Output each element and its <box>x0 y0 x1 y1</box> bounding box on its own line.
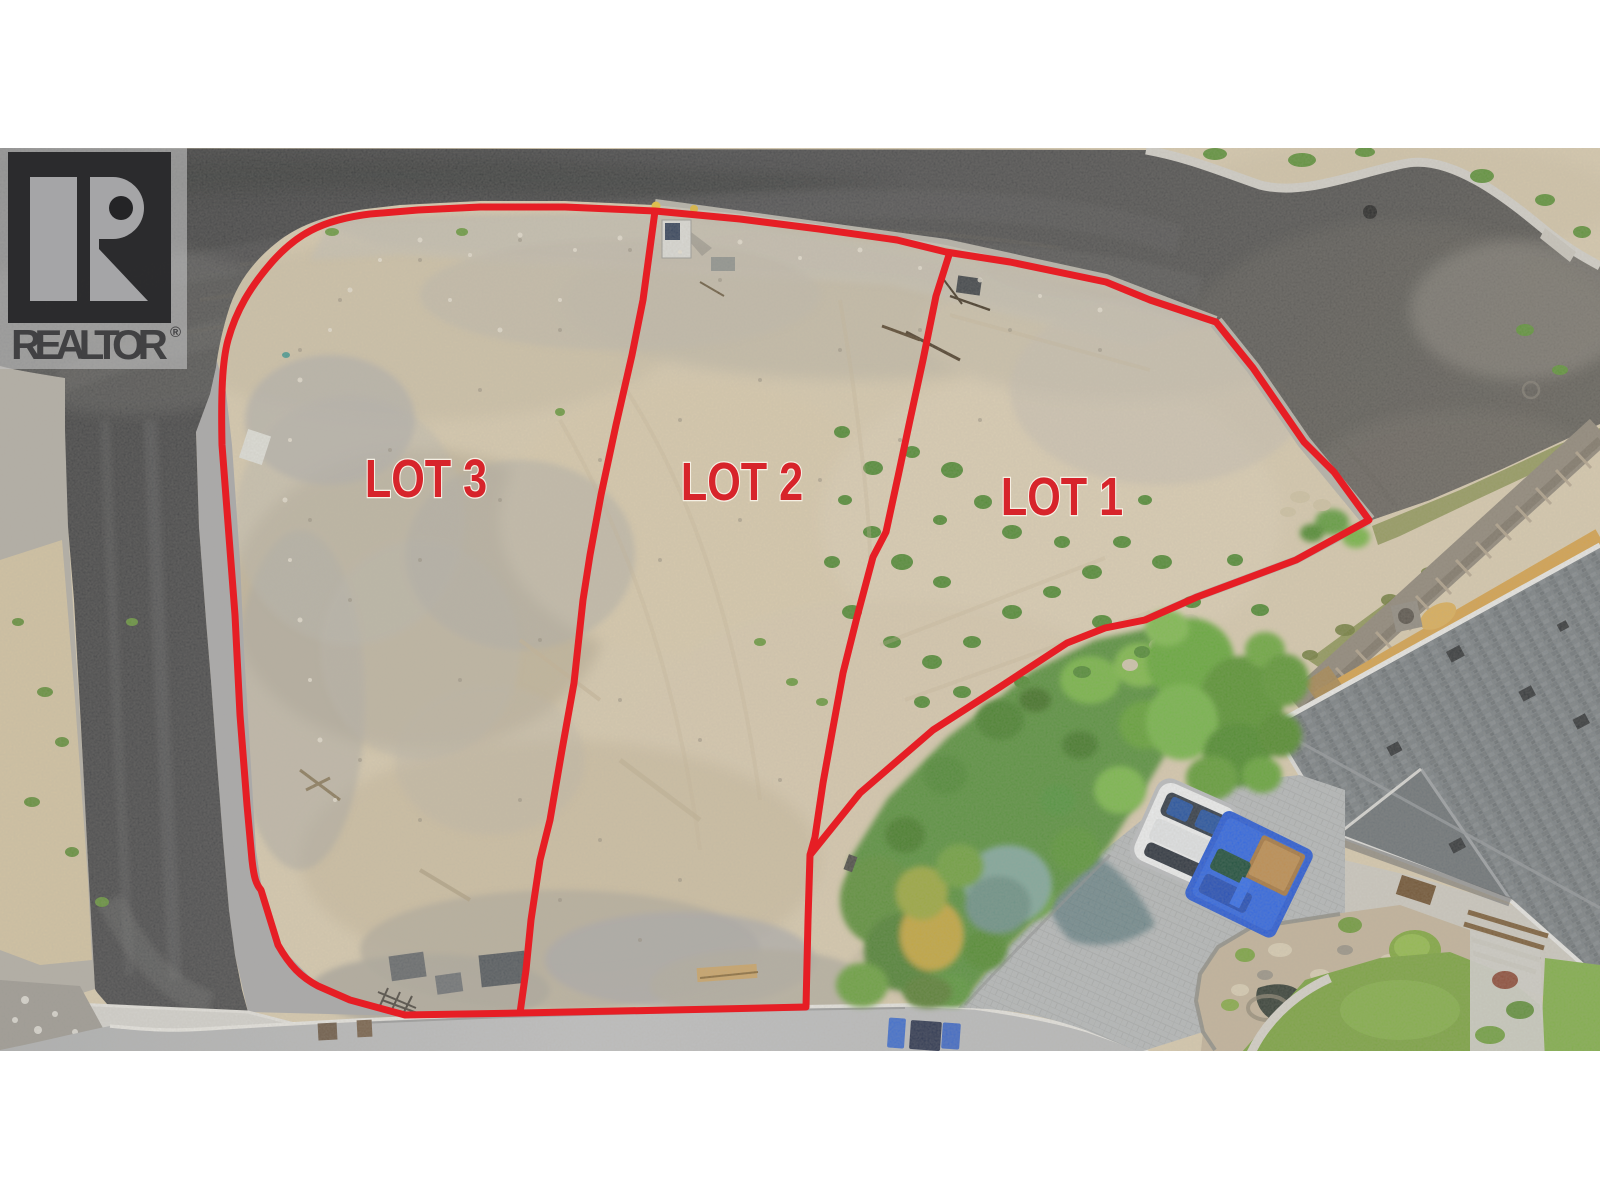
svg-text:LOT 3: LOT 3 <box>365 450 487 510</box>
svg-text:LOT 1: LOT 1 <box>1001 468 1123 528</box>
svg-text:REALTOR: REALTOR <box>11 321 168 368</box>
svg-text:®: ® <box>170 324 181 341</box>
svg-text:LOT 2: LOT 2 <box>681 453 803 513</box>
